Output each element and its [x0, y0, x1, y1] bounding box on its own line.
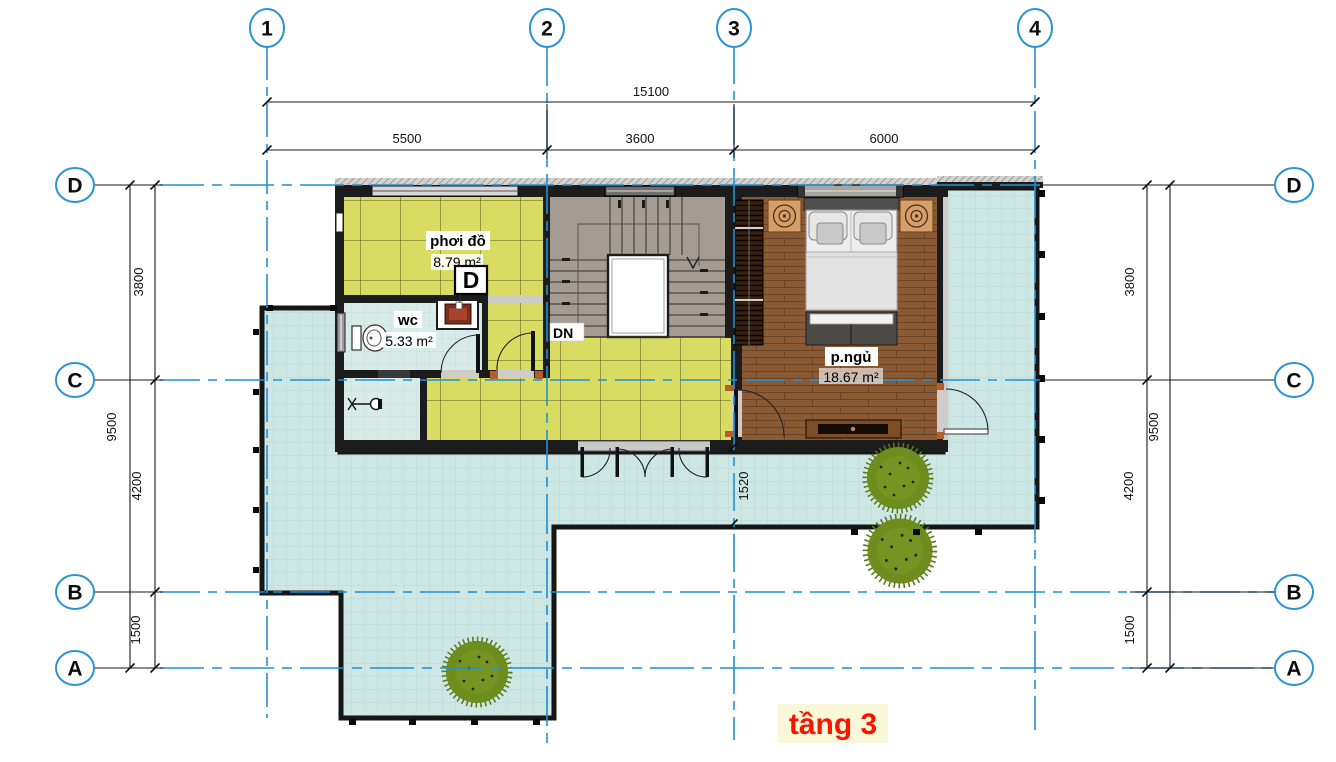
grid-bubble-D-right: D: [1286, 175, 1301, 198]
grid-bubble-C-right: C: [1286, 370, 1301, 393]
nightstand-right: [900, 200, 933, 232]
grid-bubble-A-left: A: [67, 658, 82, 681]
dim-left-seg-2: 4200: [129, 472, 144, 501]
window-phoi-do-north: [372, 186, 518, 196]
toilet: [352, 325, 387, 351]
understair-floor: [550, 337, 731, 378]
grid-bubble-A-right: A: [1286, 658, 1301, 681]
grid-bubble-B-left: B: [67, 582, 82, 605]
window-phoi-do-west: [336, 213, 343, 232]
dim-left-seg-3: 1500: [128, 616, 143, 645]
room-name-bedroom: p.ngủ: [831, 349, 872, 366]
floor-plan-canvas: 15100 5500 3600 6000 9500 3800 4200 1500…: [0, 0, 1336, 762]
dim-left-total: 9500: [104, 413, 119, 442]
dim-right-seg-3: 1500: [1122, 616, 1137, 645]
section-marker-label: D: [463, 267, 480, 293]
grid-bubble-C-left: C: [67, 370, 82, 393]
bed-end-bench: [806, 312, 897, 345]
grid-bubble-3: 3: [728, 18, 740, 41]
dim-right-seg-1: 3800: [1122, 268, 1137, 297]
dim-top-seg-1: 5500: [393, 131, 422, 146]
room-name-phoi-do: phơi đồ: [430, 233, 486, 250]
dim-left-seg-1: 3800: [131, 268, 146, 297]
dim-right-seg-2: 4200: [1121, 472, 1136, 501]
grid-bubble-1: 1: [261, 18, 273, 41]
floor-title-label: tầng 3: [789, 708, 877, 741]
dim-top-seg-2: 3600: [626, 131, 655, 146]
window-bedroom-north: [798, 185, 903, 197]
floor-plan-drawing: 15100 5500 3600 6000 9500 3800 4200 1500…: [0, 0, 1336, 762]
tv-cabinet: [806, 420, 901, 438]
room-area-wc: 5.33 m²: [385, 333, 433, 349]
dim-right-total: 9500: [1146, 413, 1161, 442]
faucet-base: [378, 399, 382, 409]
stair-open-well: [608, 255, 668, 337]
dim-top-total: 15100: [633, 84, 669, 99]
dim-door-recess: 1520: [736, 472, 751, 501]
grid-bubble-2: 2: [541, 18, 553, 41]
grid-bubble-D-left: D: [67, 175, 82, 198]
nightstand-left: [768, 200, 801, 232]
double-bed: [804, 198, 899, 310]
window-wc-west: [337, 313, 345, 352]
grid-bubble-4: 4: [1029, 18, 1041, 41]
room-name-wc: wc: [397, 312, 418, 329]
floor-title: tầng 3: [778, 704, 888, 743]
window-stair-north: [605, 186, 675, 196]
dim-top-seg-3: 6000: [870, 131, 899, 146]
grid-bubble-B-right: B: [1286, 582, 1301, 605]
corridor-floor: [427, 378, 731, 440]
room-area-bedroom: 18.67 m²: [823, 369, 879, 385]
stair-direction-label: DN: [553, 325, 573, 341]
